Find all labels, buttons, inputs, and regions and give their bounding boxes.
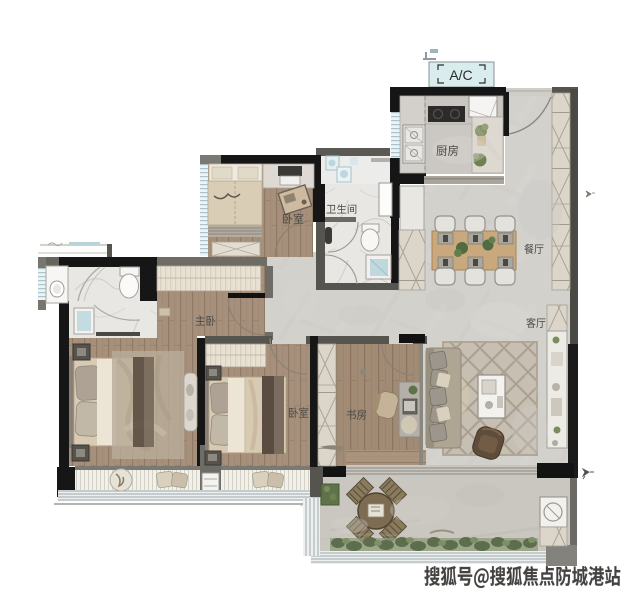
svg-text:A/C: A/C <box>449 67 472 83</box>
